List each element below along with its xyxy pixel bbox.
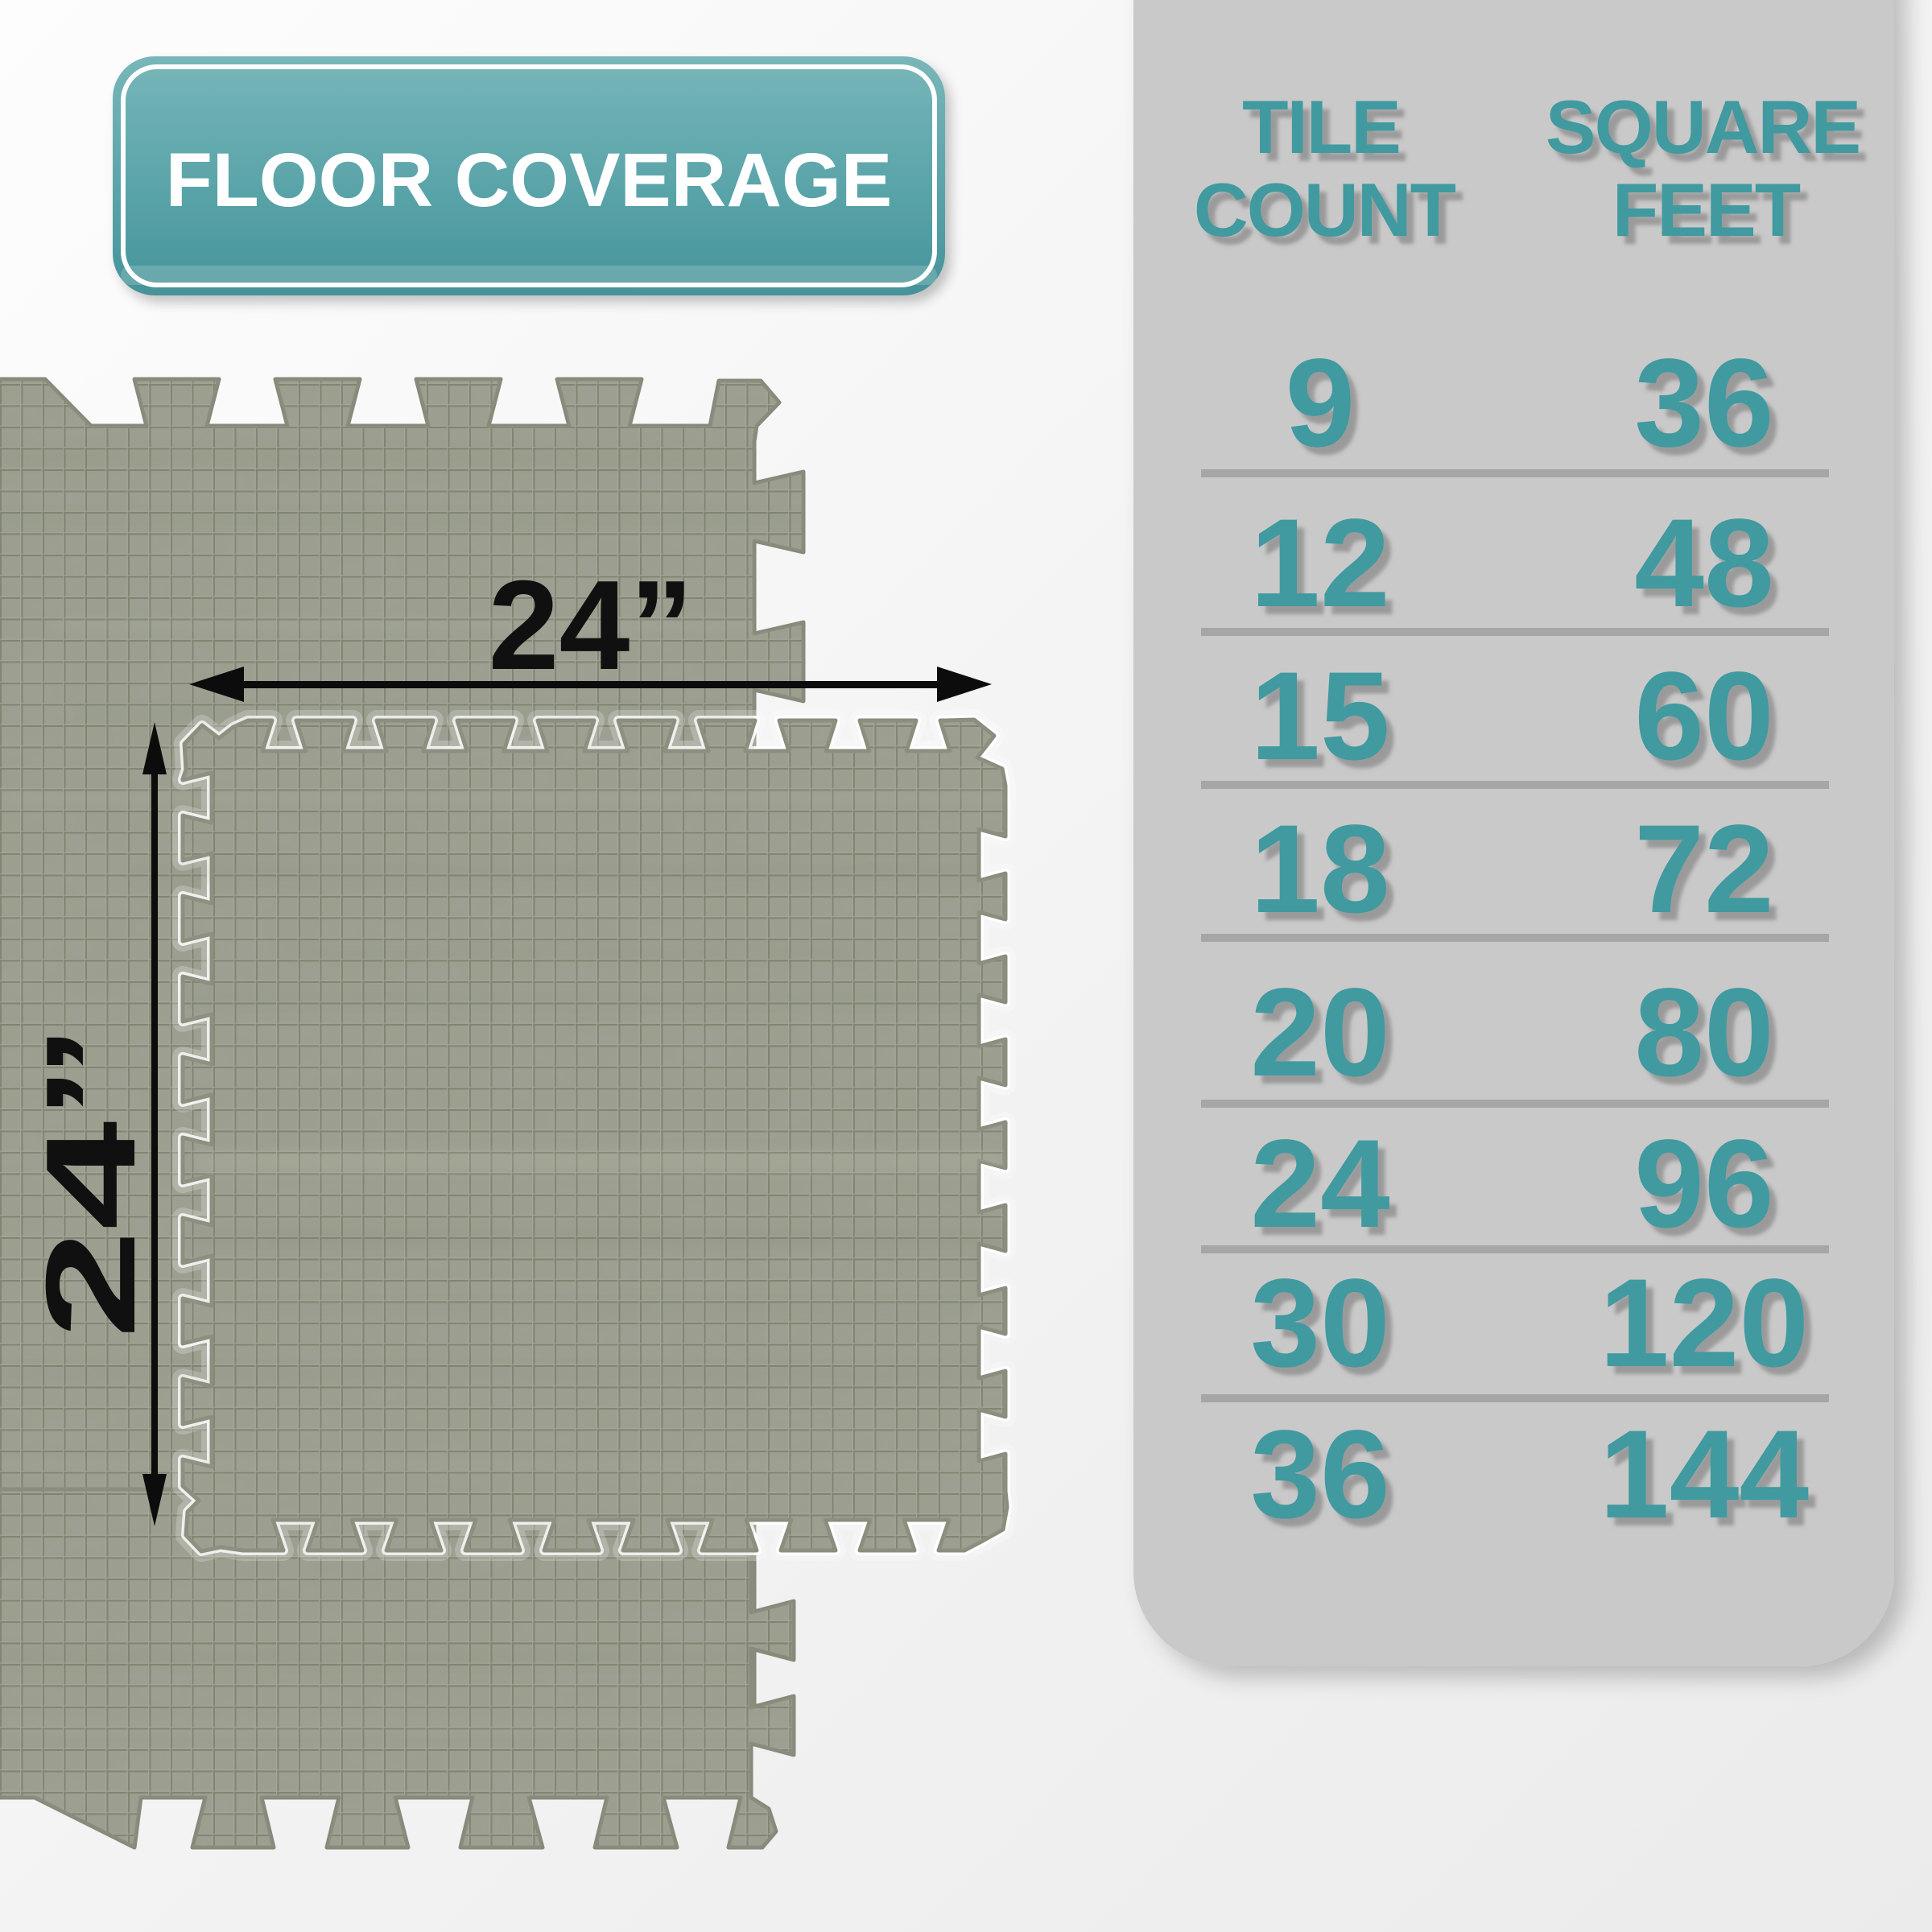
svg-text:TILE: TILE bbox=[1242, 85, 1400, 169]
svg-text:20: 20 bbox=[1250, 963, 1390, 1103]
svg-text:15: 15 bbox=[1250, 646, 1390, 786]
svg-text:FEET: FEET bbox=[1612, 167, 1801, 252]
svg-text:24”: 24” bbox=[489, 555, 694, 696]
svg-text:SQUARE: SQUARE bbox=[1546, 85, 1860, 169]
svg-text:9: 9 bbox=[1286, 333, 1356, 473]
svg-text:60: 60 bbox=[1634, 646, 1774, 786]
svg-text:12: 12 bbox=[1250, 493, 1390, 634]
svg-text:36: 36 bbox=[1634, 333, 1774, 473]
svg-text:24: 24 bbox=[1250, 1114, 1390, 1254]
svg-text:80: 80 bbox=[1634, 963, 1774, 1103]
svg-text:48: 48 bbox=[1634, 493, 1774, 634]
svg-text:120: 120 bbox=[1600, 1253, 1809, 1393]
svg-text:FLOOR COVERAGE: FLOOR COVERAGE bbox=[166, 138, 893, 223]
svg-text:24”: 24” bbox=[20, 1023, 162, 1339]
svg-text:144: 144 bbox=[1600, 1405, 1809, 1545]
svg-text:COUNT: COUNT bbox=[1194, 167, 1456, 252]
svg-text:36: 36 bbox=[1250, 1405, 1390, 1545]
svg-text:72: 72 bbox=[1634, 799, 1774, 939]
svg-text:30: 30 bbox=[1250, 1253, 1390, 1393]
svg-text:96: 96 bbox=[1634, 1114, 1774, 1254]
svg-text:18: 18 bbox=[1250, 799, 1390, 939]
